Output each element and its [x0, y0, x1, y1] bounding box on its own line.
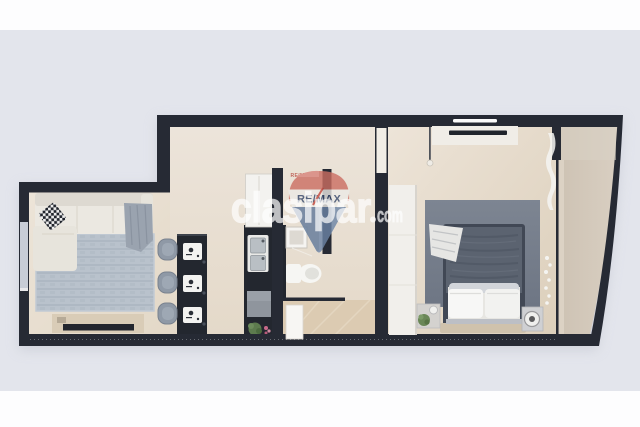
- svg-text:clasipar: clasipar: [231, 184, 371, 231]
- svg-text:com: com: [377, 205, 403, 227]
